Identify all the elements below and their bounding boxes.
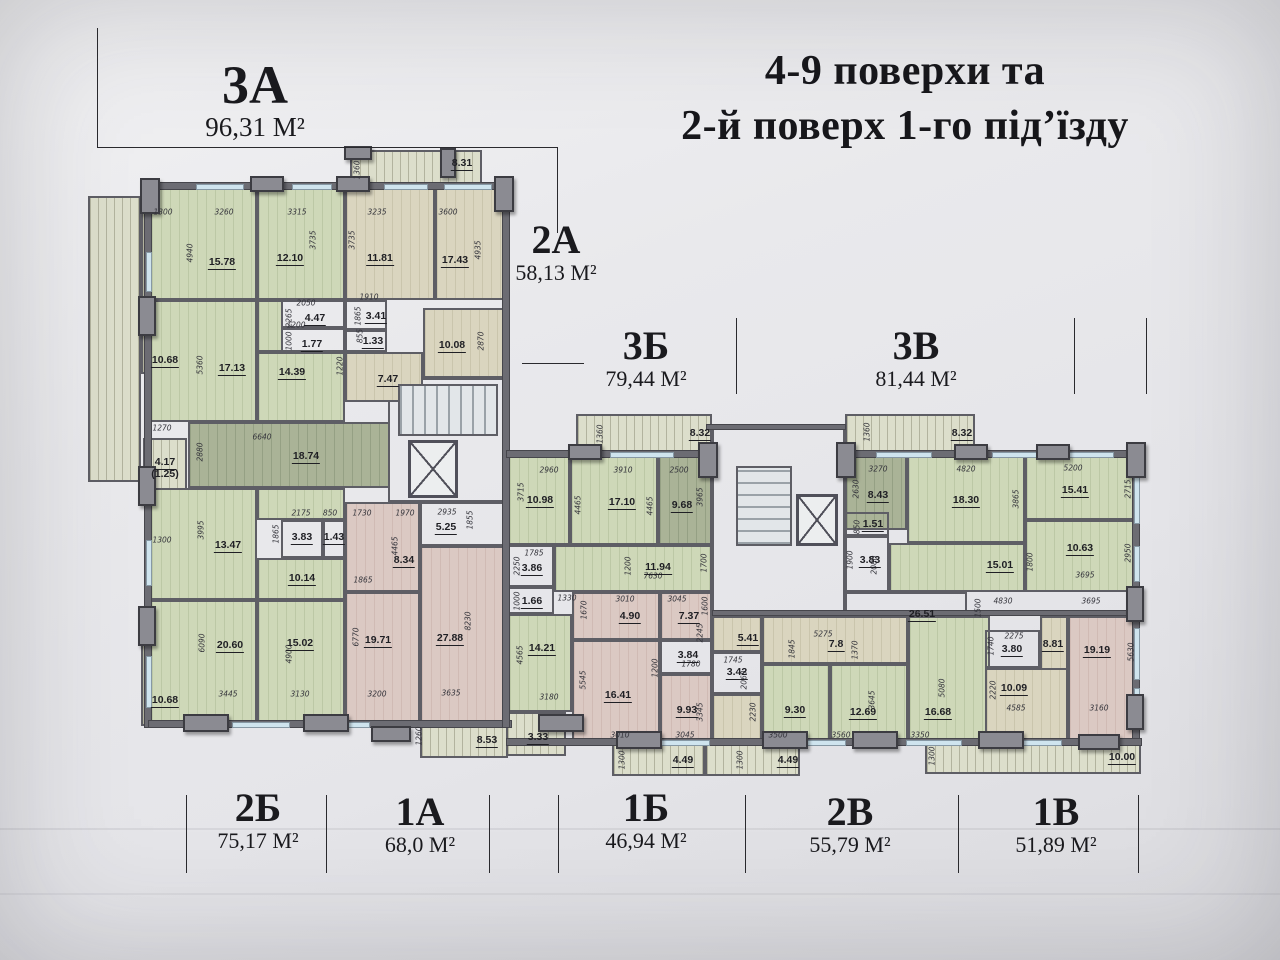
room-area-label: 3.41 (365, 310, 387, 322)
dimension-label: 3315 (287, 208, 306, 217)
label-tick-line (97, 28, 98, 148)
label-tick-line (522, 363, 584, 364)
column (954, 444, 988, 460)
room-area-label: 4.49 (672, 754, 694, 766)
room (188, 422, 390, 488)
room-area-label: 8.43 (867, 489, 889, 501)
dimension-label: 1200 (624, 556, 633, 575)
label-tick-line (1138, 795, 1139, 873)
room-area-label: 10.98 (526, 494, 554, 506)
room (257, 600, 345, 725)
room-area-label: 15.41 (1061, 484, 1089, 496)
room-area-label: 1.33 (362, 335, 384, 347)
column (568, 444, 602, 460)
dimension-label: 1360 (863, 422, 872, 441)
room-area-label: 13.47 (214, 539, 242, 551)
dimension-label: 2500 (669, 466, 688, 475)
dimension-label: 1700 (700, 553, 709, 572)
room-area-label: 7.47 (377, 373, 399, 385)
room-area-label: 3.83 (291, 531, 313, 543)
room-area-label: 14.21 (528, 642, 556, 654)
room-area-label: 14.39 (278, 366, 306, 378)
room-area-label: 4.49 (777, 754, 799, 766)
dimension-label: 1300 (153, 208, 172, 217)
dimension-label: 3695 (1075, 571, 1094, 580)
room-area-label: 10.09 (1000, 682, 1028, 694)
apartment-label-1А: 1А68,0 М² (385, 792, 455, 858)
dimension-label: 3735 (309, 230, 318, 249)
dimension-label: 850 (853, 520, 862, 534)
dimension-label: 2230 (749, 702, 758, 721)
column (978, 731, 1024, 749)
dimension-label: 1200 (651, 658, 660, 677)
dimension-label: 3445 (218, 690, 237, 699)
label-tick-line (958, 795, 959, 873)
apartment-label-1В: 1В51,89 М² (1015, 792, 1096, 858)
label-tick-line (1146, 318, 1147, 394)
label-tick-line (97, 147, 557, 148)
room-area-label: 26.51 (908, 608, 936, 620)
dimension-label: 4935 (474, 240, 483, 259)
column (1126, 442, 1146, 478)
dimension-label: 5630 (1127, 642, 1136, 661)
window (1134, 546, 1140, 582)
dimension-label: 1745 (723, 656, 742, 665)
label-tick-line (558, 795, 559, 873)
dimension-label: 3635 (441, 689, 460, 698)
dimension-label: 3180 (539, 693, 558, 702)
dimension-label: 3995 (197, 520, 206, 539)
page-title: 4-9 поверхи та 2-й поверх 1-го під’їзду (640, 44, 1170, 155)
room (257, 352, 345, 422)
staircase (736, 466, 792, 546)
apartment-label-3А: 3А96,31 М² (205, 58, 305, 143)
window (146, 252, 152, 292)
column (836, 442, 856, 478)
dimension-label: 3160 (1089, 704, 1108, 713)
dimension-label: 3910 (613, 466, 632, 475)
dimension-label: 2275 (1004, 632, 1023, 641)
dimension-label: 1300 (618, 750, 627, 769)
column (494, 176, 514, 212)
column (852, 731, 898, 749)
column (138, 606, 156, 646)
room-area-label: 18.74 (292, 450, 320, 462)
dimension-label: 4830 (993, 597, 1012, 606)
dimension-label: 1865 (354, 306, 363, 325)
room-area-label: 15.78 (208, 256, 236, 268)
dimension-label: 3735 (348, 230, 357, 249)
room-area-label: 1.51 (862, 518, 884, 530)
staircase (398, 384, 498, 436)
dimension-label: 4465 (646, 496, 655, 515)
room-area-label: 9.93 (676, 704, 698, 716)
room-area-label: 15.02 (286, 637, 314, 649)
label-tick-line (745, 795, 746, 873)
room-area-label: 10.68 (151, 694, 179, 706)
dimension-label: 1360 (353, 160, 362, 179)
room-area-label: 5.25 (435, 521, 457, 533)
dimension-label: 1855 (466, 510, 475, 529)
dimension-label: 1370 (851, 640, 860, 659)
paper-crease (0, 893, 1280, 895)
column (250, 176, 284, 192)
dimension-label: 3695 (1081, 597, 1100, 606)
room-area-label: 9.68 (671, 499, 693, 511)
window (146, 540, 152, 586)
apartment-label-2Б: 2Б75,17 М² (217, 788, 298, 854)
column (1126, 694, 1144, 730)
dimension-label: 3045 (675, 731, 694, 740)
apartment-label-3Б: 3Б79,44 М² (605, 326, 686, 392)
dimension-label: 3045 (667, 595, 686, 604)
window (610, 452, 674, 458)
window (232, 722, 290, 728)
dimension-label: 4820 (956, 465, 975, 474)
dimension-label: 2220 (989, 680, 998, 699)
room-area-label: 7.8 (828, 638, 845, 650)
dimension-label: 2950 (1124, 543, 1133, 562)
room-area-label: 8.34 (393, 554, 415, 566)
dimension-label: 1900 (846, 550, 855, 569)
dimension-label: 3130 (290, 690, 309, 699)
label-tick-line (326, 795, 327, 873)
wall (706, 424, 846, 430)
window (196, 184, 244, 190)
dimension-label: 1865 (272, 524, 281, 543)
room-area-label: 4.17(1.25) (151, 456, 178, 480)
column (303, 714, 349, 732)
column (698, 442, 718, 478)
room-area-label: 27.88 (436, 632, 464, 644)
dimension-label: 850 (323, 509, 337, 518)
dimension-label: 6090 (198, 633, 207, 652)
dimension-label: 1600 (701, 596, 710, 615)
title-line-2: 2-й поверх 1-го під’їзду (681, 103, 1129, 149)
elevator-shaft (796, 494, 838, 546)
dimension-label: 1330 (557, 594, 576, 603)
dimension-label: 1300 (736, 750, 745, 769)
room-area-label: 11.94 (644, 561, 672, 573)
dimension-label: 5200 (1063, 464, 1082, 473)
dimension-label: 4465 (391, 536, 400, 555)
room-area-label: 8.81 (1042, 638, 1064, 650)
column (1036, 444, 1070, 460)
dimension-label: 6770 (352, 627, 361, 646)
room-area-label: 4.90 (619, 610, 641, 622)
room-area-label: 10.00 (1108, 751, 1136, 763)
dimension-label: 1270 (152, 424, 171, 433)
room (420, 502, 506, 546)
room-area-label: 10.63 (1066, 542, 1094, 554)
dimension-label: 1730 (352, 509, 371, 518)
dimension-label: 1300 (152, 536, 171, 545)
dimension-label: 1670 (580, 600, 589, 619)
dimension-label: 3010 (610, 731, 629, 740)
dimension-label: 1360 (596, 424, 605, 443)
room-area-label: 4.47 (304, 312, 326, 324)
dimension-label: 4565 (516, 645, 525, 664)
room (257, 300, 283, 352)
dimension-label: 2175 (291, 509, 310, 518)
dimension-label: 2880 (196, 442, 205, 461)
room (1025, 520, 1137, 592)
room-area-label: 7.37 (678, 610, 700, 622)
room-area-label: 3.84 (677, 649, 699, 661)
dimension-label: 1865 (353, 576, 372, 585)
apartment-label-1Б: 1Б46,94 М² (605, 788, 686, 854)
room-area-label: 16.68 (924, 706, 952, 718)
room-area-label: 10.14 (288, 572, 316, 584)
room-area-label: 19.71 (364, 634, 392, 646)
apartment-label-3В: 3В81,44 М² (875, 326, 956, 392)
room-area-label: 3.33 (527, 731, 549, 743)
room (150, 188, 257, 300)
dimension-label: 3865 (1012, 489, 1021, 508)
room-area-label: 10.08 (438, 339, 466, 351)
dimension-label: 3715 (517, 482, 526, 501)
dimension-label: 1000 (285, 331, 294, 350)
room-area-label: 17.10 (608, 496, 636, 508)
window (384, 184, 428, 190)
column (1126, 586, 1144, 622)
window (444, 184, 492, 190)
column (183, 714, 229, 732)
room (345, 188, 435, 300)
window (876, 452, 932, 458)
dimension-label: 5080 (938, 678, 947, 697)
room-area-label: 19.19 (1083, 644, 1111, 656)
room-area-label: 11.81 (366, 252, 394, 264)
dimension-label: 2265 (285, 308, 294, 327)
dimension-label: 3560 (831, 731, 850, 740)
dimension-label: 1260 (415, 726, 424, 745)
room (88, 196, 141, 482)
room (345, 592, 420, 725)
label-tick-line (736, 318, 737, 394)
dimension-label: 2050 (296, 299, 315, 308)
room-area-label: 3.80 (1001, 643, 1023, 655)
dimension-label: 6640 (252, 433, 271, 442)
room-area-label: 3.86 (521, 562, 543, 574)
dimension-label: 2870 (477, 331, 486, 350)
dimension-label: 1910 (359, 293, 378, 302)
dimension-label: 3600 (438, 208, 457, 217)
dimension-label: 5360 (196, 355, 205, 374)
dimension-label: 2245 (696, 623, 705, 642)
column (344, 146, 372, 160)
dimension-label: 2935 (437, 508, 456, 517)
room-area-label: 12.10 (276, 252, 304, 264)
column (1078, 734, 1120, 750)
dimension-label: 2715 (1124, 479, 1133, 498)
room-area-label: 20.60 (216, 639, 244, 651)
dimension-label: 3260 (214, 208, 233, 217)
dimension-label: 1785 (524, 549, 543, 558)
room (554, 545, 712, 592)
dimension-label: 1300 (928, 746, 937, 765)
dimension-label: 1800 (1026, 552, 1035, 571)
room-area-label: 16.41 (604, 689, 632, 701)
column (138, 296, 156, 336)
room-area-label: 17.43 (441, 254, 469, 266)
dimension-label: 2960 (539, 466, 558, 475)
apartment-label-2А: 2А58,13 М² (515, 220, 596, 286)
room-area-label: 3.42 (726, 666, 748, 678)
dimension-label: 5545 (579, 670, 588, 689)
dimension-label: 1970 (395, 509, 414, 518)
room (257, 188, 345, 300)
dimension-label: 1845 (788, 639, 797, 658)
dimension-label: 4940 (186, 243, 195, 262)
dimension-label: 1740 (987, 636, 996, 655)
window (292, 184, 332, 190)
room-area-label: 10.68 (151, 354, 179, 366)
dimension-label: 4585 (1006, 704, 1025, 713)
room-area-label: 3.83 (859, 554, 881, 566)
dimension-label: 3270 (868, 465, 887, 474)
room-area-label: 17.13 (218, 362, 246, 374)
dimension-label: 1220 (336, 356, 345, 375)
apartment-label-2В: 2В55,79 М² (809, 792, 890, 858)
dimension-label: 8230 (464, 611, 473, 630)
dimension-label: 4465 (574, 495, 583, 514)
room-area-label: 8.31 (451, 157, 473, 169)
room-area-label: 18.30 (952, 494, 980, 506)
column (371, 726, 411, 742)
room-area-label: 8.32 (951, 427, 973, 439)
room-area-label: 9.30 (784, 704, 806, 716)
dimension-label: 3500 (768, 731, 787, 740)
dimension-label: 3200 (367, 690, 386, 699)
dimension-label: 1500 (974, 598, 983, 617)
room-area-label: 15.01 (986, 559, 1014, 571)
dimension-label: 3010 (615, 595, 634, 604)
dimension-label: 2630 (852, 479, 861, 498)
dimension-label: 3965 (696, 487, 705, 506)
column (538, 714, 584, 732)
room-area-label: 8.32 (689, 427, 711, 439)
room-area-label: 12.69 (849, 706, 877, 718)
room-area-label: 1.43 (323, 531, 345, 543)
room-area-label: 5.41 (737, 632, 759, 644)
floor-plan-photo: 4-9 поверхи та 2-й поверх 1-го під’їзду … (0, 0, 1280, 960)
dimension-label: 3350 (910, 731, 929, 740)
room-area-label: 8.53 (476, 734, 498, 746)
room (908, 616, 990, 742)
room-area-label: 1.66 (521, 595, 543, 607)
title-line-1: 4-9 поверхи та (765, 48, 1045, 94)
room-area-label: 1.77 (301, 338, 323, 350)
label-tick-line (489, 795, 490, 873)
window (906, 740, 962, 746)
elevator-shaft (408, 440, 458, 498)
dimension-label: 3235 (367, 208, 386, 217)
label-tick-line (186, 795, 187, 873)
label-tick-line (1074, 318, 1075, 394)
